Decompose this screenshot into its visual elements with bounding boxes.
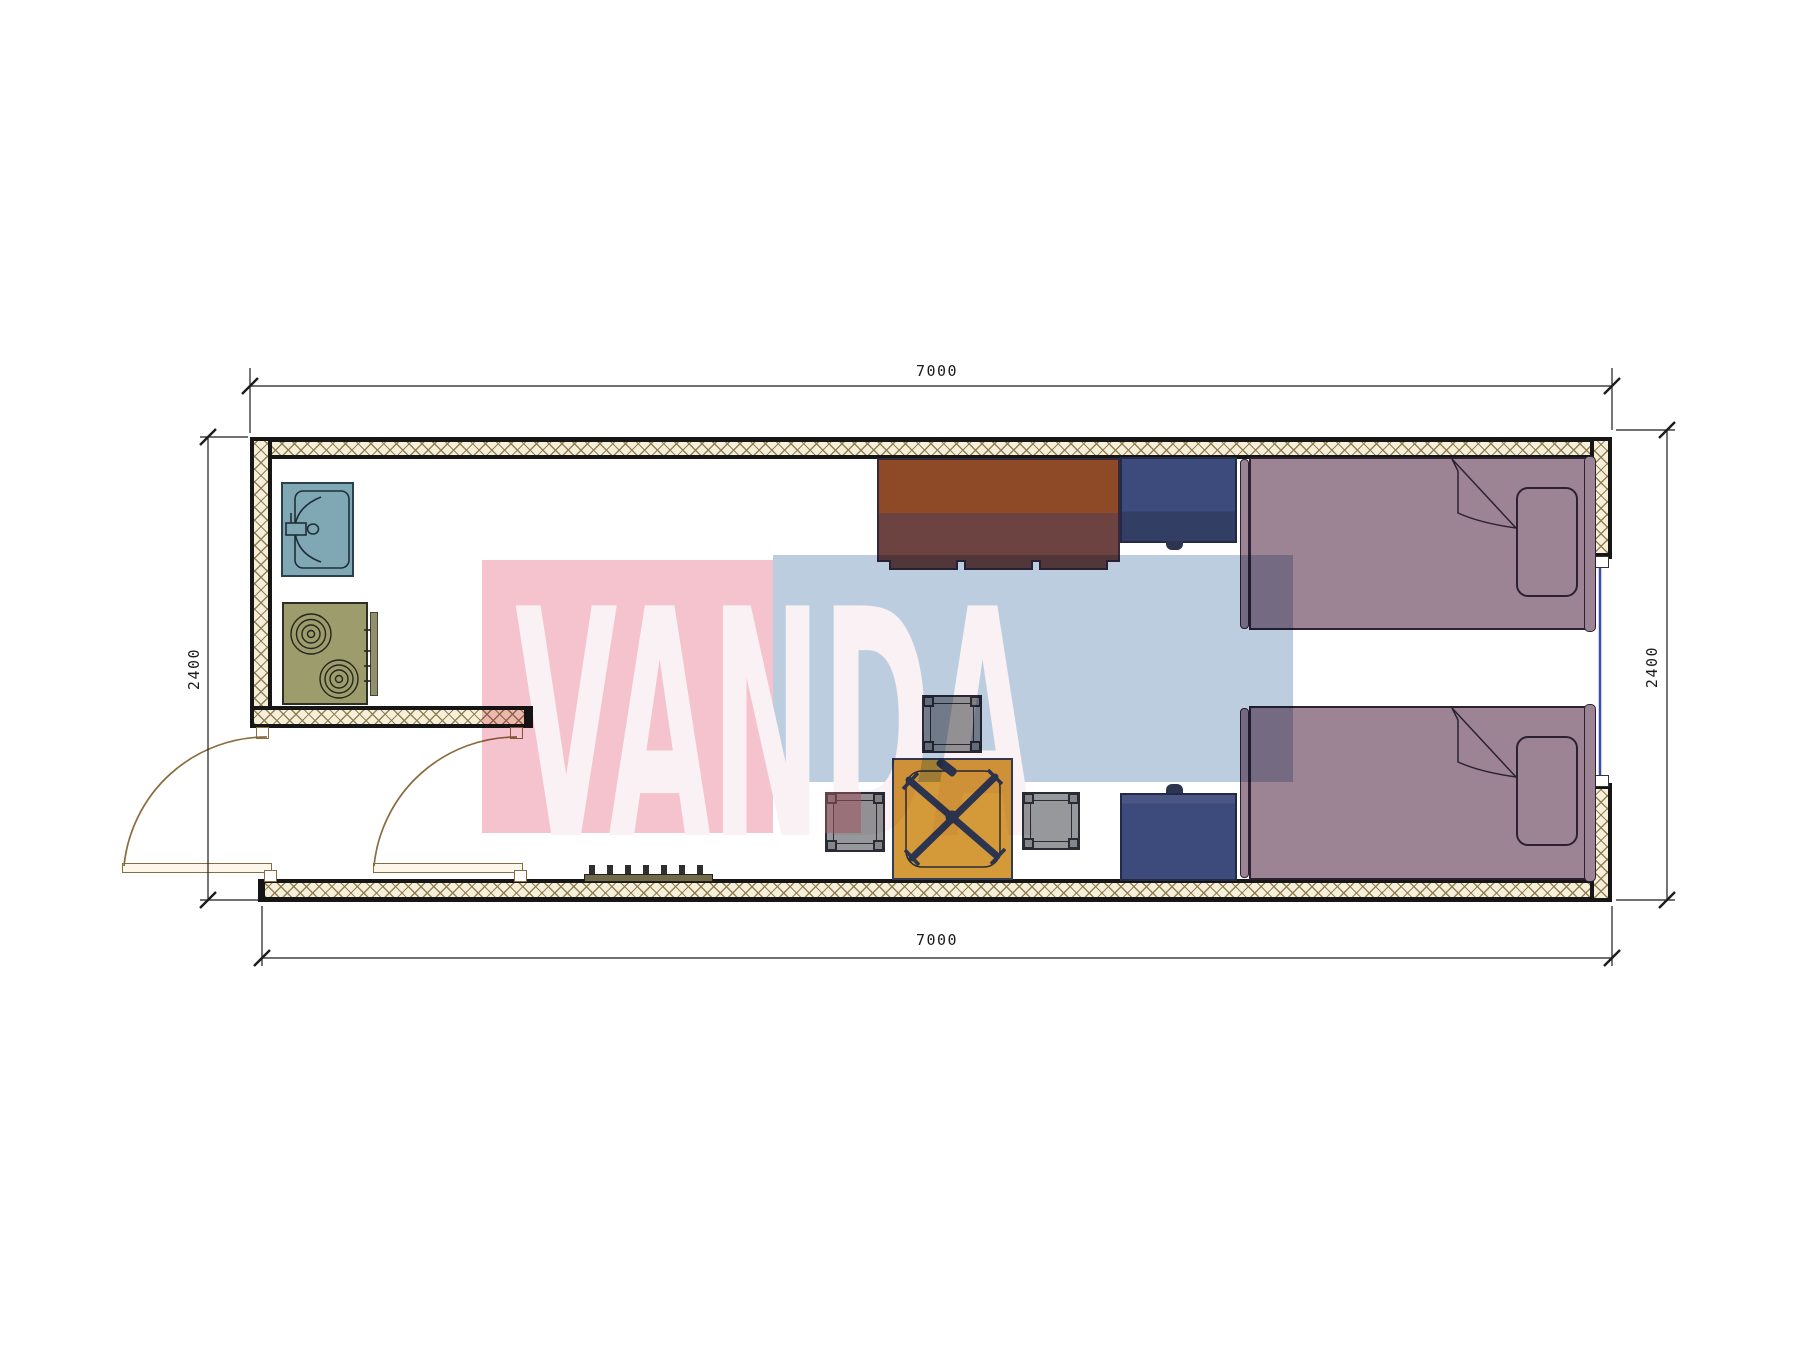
door-swing-arc [124,737,517,866]
dimension-label-top: 7000 [887,362,987,380]
dimension-label-right: 2400 [1643,617,1661,717]
blanket-fold [1452,459,1516,777]
dimension-label-left: 2400 [185,619,203,719]
chair-x-base-icon [903,757,1005,865]
linework-layer [0,0,1800,1350]
floor-plan-canvas: 7000 7000 2400 2400 VANDA [0,0,1800,1350]
dimension-label-bottom: 7000 [887,931,987,949]
sink-basin-icon [286,491,349,568]
dimension-ticks [200,378,1675,966]
dimension-lines [200,368,1675,966]
stove-burner-icon [291,614,371,698]
